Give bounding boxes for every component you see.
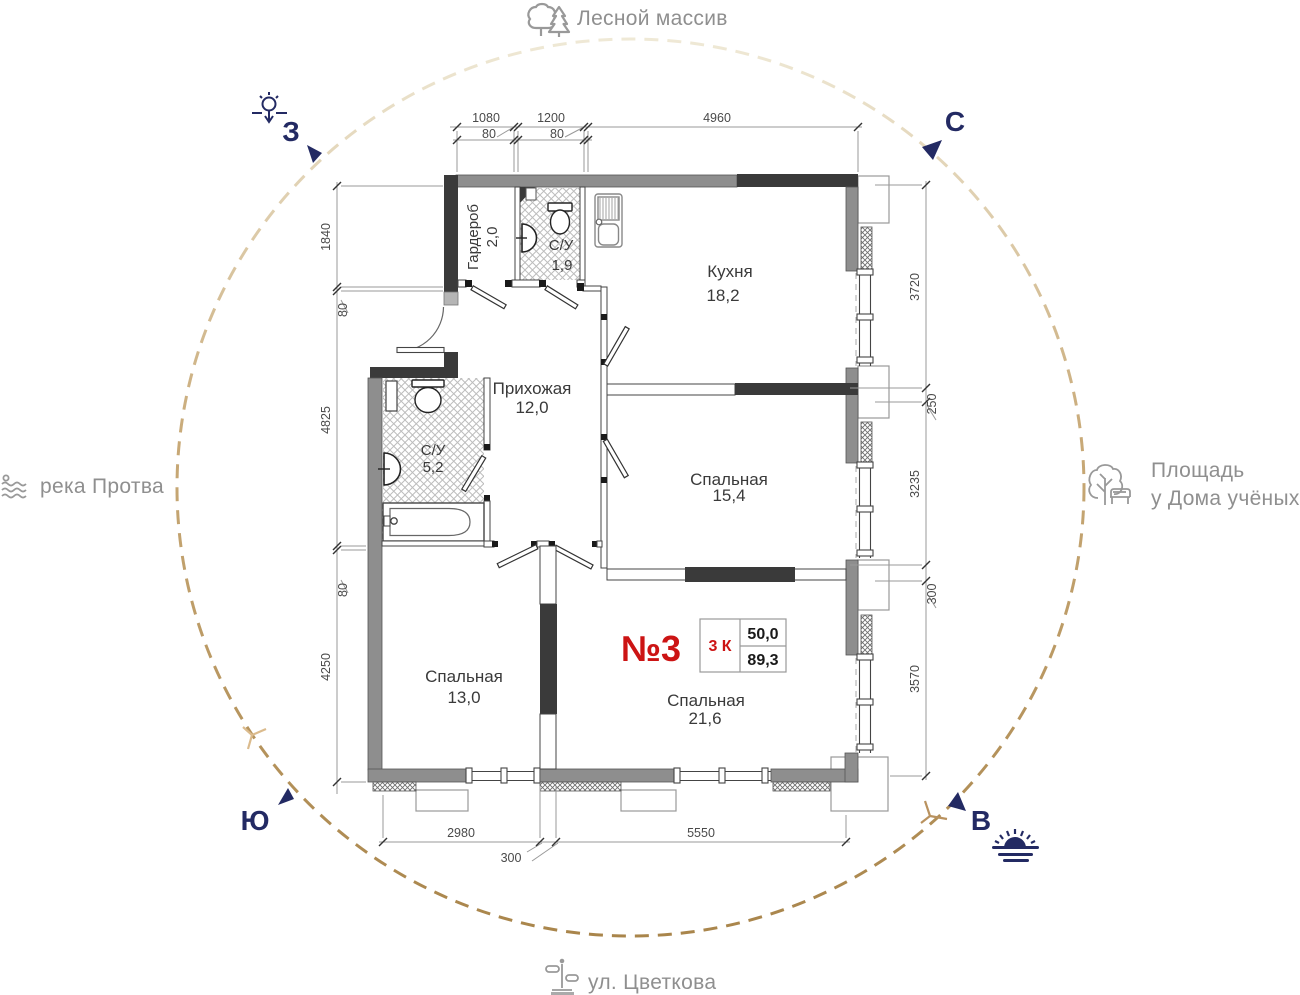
svg-text:18,2: 18,2 — [706, 286, 739, 305]
svg-text:Спальная: Спальная — [425, 667, 503, 686]
svg-text:3720: 3720 — [908, 273, 922, 301]
svg-text:80: 80 — [550, 127, 564, 141]
svg-text:300: 300 — [501, 851, 522, 865]
svg-text:Лесной массив: Лесной массив — [577, 7, 728, 30]
svg-text:80: 80 — [336, 303, 350, 317]
svg-text:река Протва: река Протва — [40, 475, 164, 498]
svg-text:4250: 4250 — [319, 653, 333, 681]
svg-text:1,9: 1,9 — [552, 257, 573, 274]
svg-text:80: 80 — [336, 583, 350, 597]
svg-text:50,0: 50,0 — [747, 626, 778, 643]
svg-text:4825: 4825 — [319, 406, 333, 434]
svg-text:Ю: Ю — [241, 805, 270, 836]
svg-text:Кухня: Кухня — [707, 262, 753, 281]
svg-text:Площадь: Площадь — [1151, 459, 1245, 482]
svg-text:250: 250 — [925, 394, 939, 415]
svg-text:Гардероб: Гардероб — [465, 204, 482, 270]
svg-text:С/У: С/У — [421, 442, 446, 459]
svg-text:С/У: С/У — [549, 237, 574, 254]
svg-text:15,4: 15,4 — [712, 486, 745, 505]
svg-text:2980: 2980 — [447, 826, 475, 840]
svg-text:С: С — [945, 106, 965, 137]
svg-text:300: 300 — [925, 584, 939, 605]
svg-text:4960: 4960 — [703, 111, 731, 125]
svg-text:13,0: 13,0 — [447, 688, 480, 707]
svg-text:у Дома учёных: у Дома учёных — [1151, 487, 1300, 510]
svg-text:21,6: 21,6 — [688, 709, 721, 728]
svg-text:1200: 1200 — [537, 111, 565, 125]
svg-text:89,3: 89,3 — [747, 652, 778, 669]
svg-text:3235: 3235 — [908, 470, 922, 498]
svg-text:1080: 1080 — [472, 111, 500, 125]
svg-text:12,0: 12,0 — [515, 398, 548, 417]
svg-text:5550: 5550 — [687, 826, 715, 840]
svg-text:Прихожая: Прихожая — [493, 379, 572, 398]
svg-text:№3: №3 — [621, 628, 681, 669]
svg-text:З: З — [282, 116, 300, 147]
svg-text:5,2: 5,2 — [423, 459, 444, 476]
svg-text:3570: 3570 — [908, 665, 922, 693]
svg-text:В: В — [971, 805, 991, 836]
svg-text:80: 80 — [482, 127, 496, 141]
svg-text:3 К: 3 К — [708, 638, 731, 655]
svg-text:Спальная: Спальная — [667, 691, 745, 710]
svg-text:1840: 1840 — [319, 223, 333, 251]
svg-text:ул. Цветкова: ул. Цветкова — [588, 971, 716, 994]
svg-text:2,0: 2,0 — [484, 227, 501, 248]
